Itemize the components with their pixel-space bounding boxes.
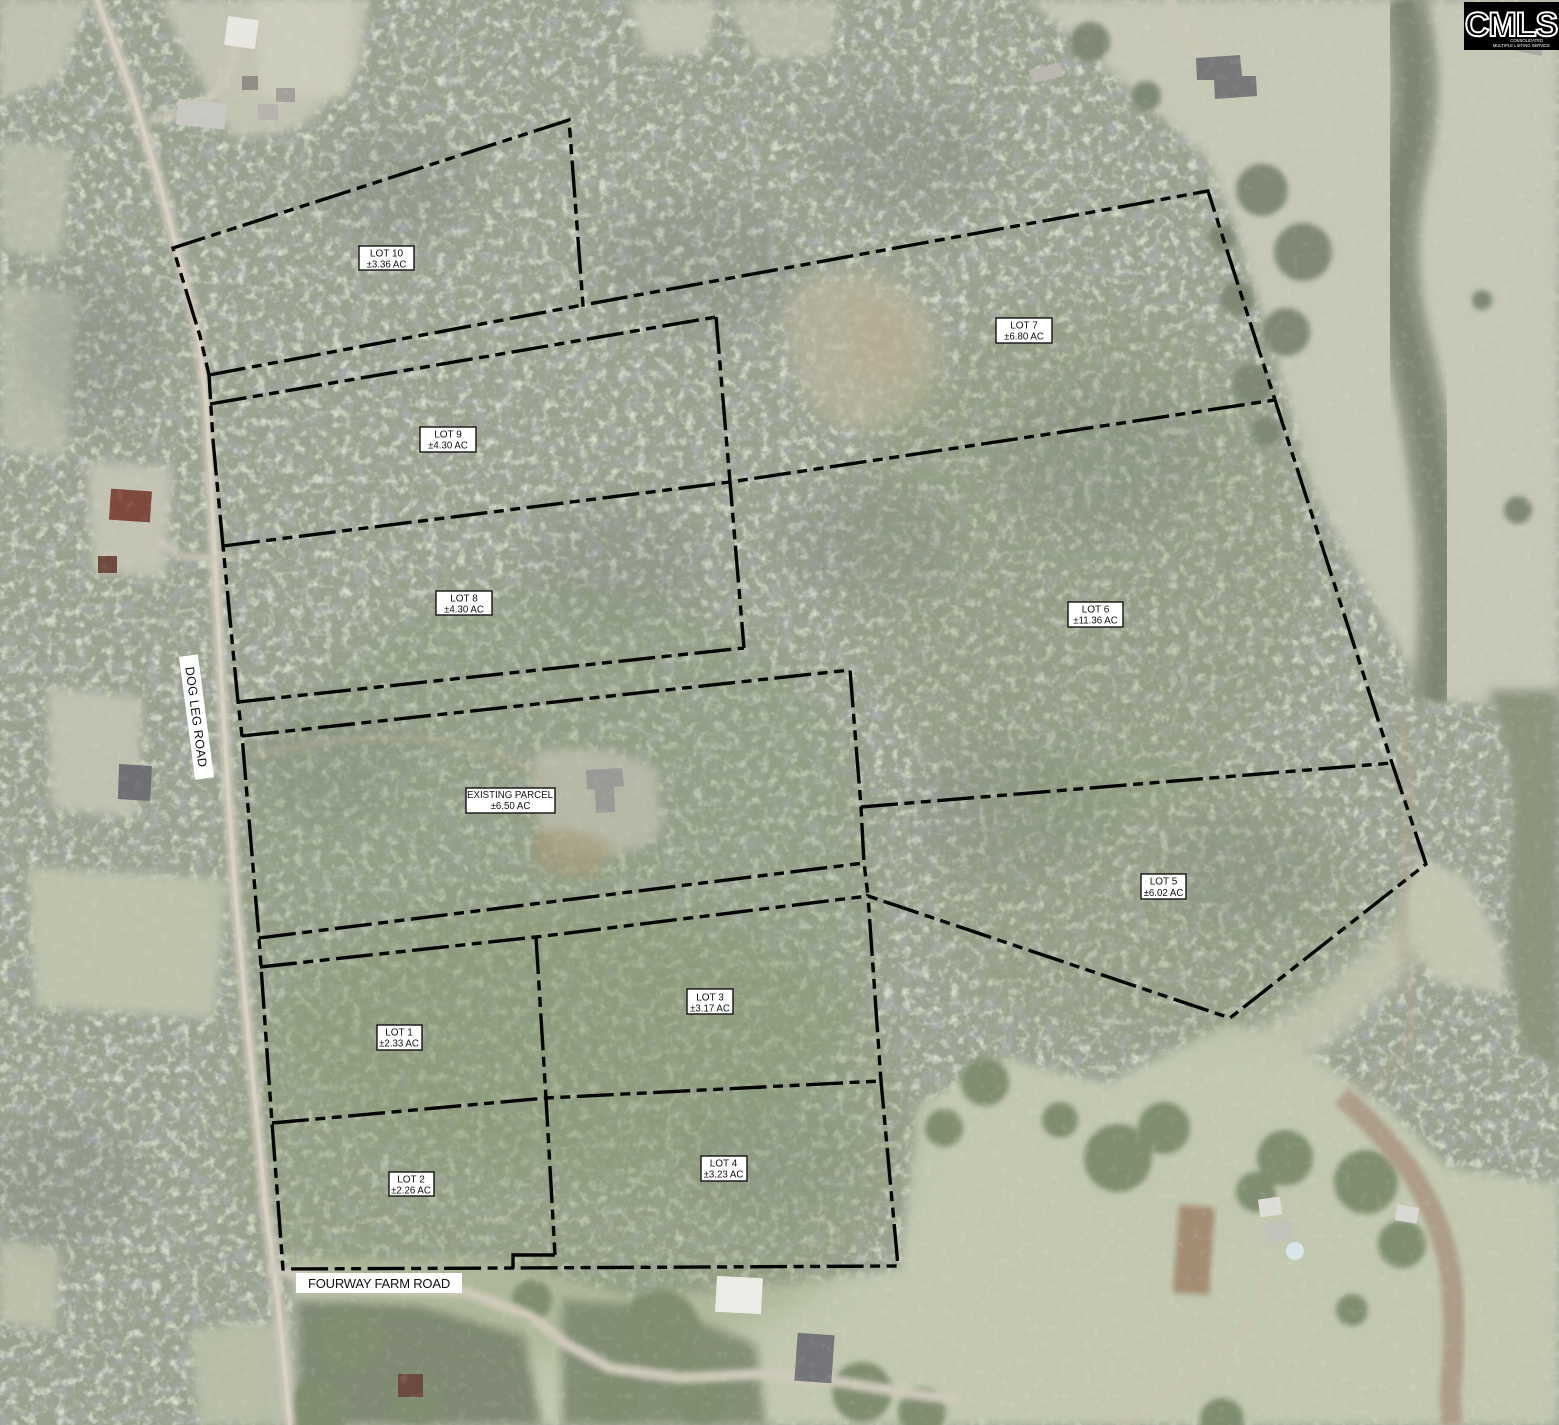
svg-text:±3.23 AC: ±3.23 AC: [704, 1170, 744, 1181]
svg-text:LOT 2: LOT 2: [397, 1175, 425, 1186]
svg-text:LOT 8: LOT 8: [450, 594, 478, 605]
svg-text:LOT 6: LOT 6: [1082, 605, 1110, 616]
svg-text:±6.50 AC: ±6.50 AC: [491, 801, 531, 812]
svg-text:LOT 4: LOT 4: [710, 1159, 738, 1170]
svg-text:LOT 10: LOT 10: [370, 249, 404, 260]
svg-text:EXISTING PARCEL: EXISTING PARCEL: [467, 790, 554, 801]
svg-text:±6.80 AC: ±6.80 AC: [1004, 332, 1044, 343]
svg-text:±3.17 AC: ±3.17 AC: [690, 1004, 730, 1015]
svg-text:±4.30 AC: ±4.30 AC: [444, 605, 484, 616]
svg-text:LOT 9: LOT 9: [434, 430, 462, 441]
svg-text:±4.30 AC: ±4.30 AC: [428, 441, 468, 452]
svg-text:LOT 1: LOT 1: [385, 1028, 413, 1039]
svg-text:±2.26 AC: ±2.26 AC: [391, 1186, 431, 1197]
svg-text:±2.33 AC: ±2.33 AC: [379, 1039, 419, 1050]
svg-text:±3.36 AC: ±3.36 AC: [367, 260, 407, 271]
svg-text:±11.36 AC: ±11.36 AC: [1073, 616, 1117, 627]
svg-text:FOURWAY FARM ROAD: FOURWAY FARM ROAD: [308, 1276, 450, 1291]
svg-text:LOT 7: LOT 7: [1010, 321, 1038, 332]
svg-text:LOT 5: LOT 5: [1150, 877, 1178, 888]
svg-text:MULTIPLE LISTING SERVICE: MULTIPLE LISTING SERVICE: [1493, 43, 1550, 48]
svg-text:LOT 3: LOT 3: [696, 993, 724, 1004]
svg-text:±6.02 AC: ±6.02 AC: [1144, 888, 1184, 899]
